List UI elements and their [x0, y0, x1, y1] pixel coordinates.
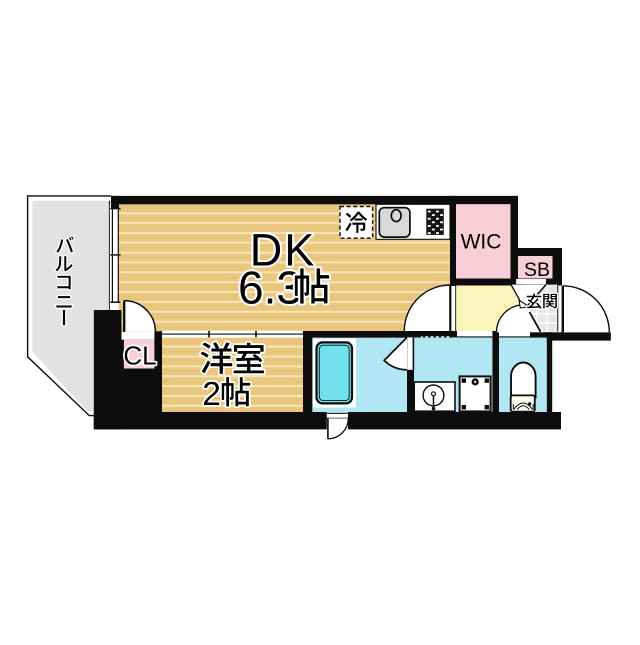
svg-text:SB: SB [524, 259, 550, 281]
svg-text:WIC: WIC [461, 231, 502, 254]
svg-text:2: 2 [202, 376, 221, 413]
svg-text:6.3: 6.3 [238, 262, 302, 314]
svg-text:CL: CL [123, 341, 156, 371]
